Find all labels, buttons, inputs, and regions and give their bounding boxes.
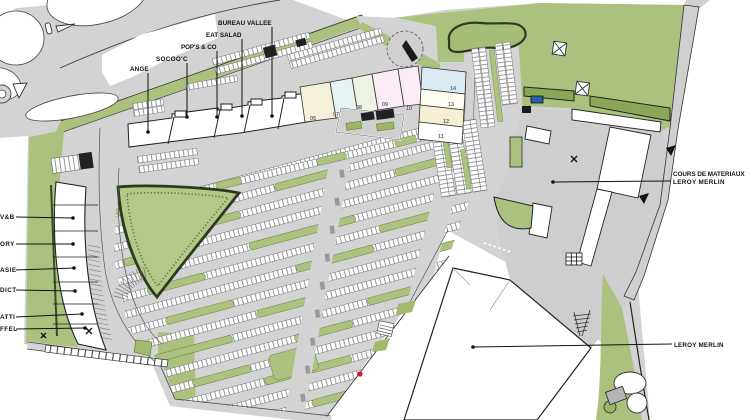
svg-text:09: 09	[382, 102, 388, 108]
svg-text:05: 05	[310, 116, 316, 122]
svg-text:ASIE: ASIE	[0, 267, 17, 274]
svg-text:ATTI: ATTI	[0, 314, 15, 321]
svg-text:ORY: ORY	[0, 241, 15, 248]
svg-text:LEROY MERLIN: LEROY MERLIN	[674, 342, 724, 349]
svg-text:DICT: DICT	[0, 287, 17, 294]
svg-text:EAT SALAD: EAT SALAD	[206, 32, 242, 39]
svg-text:SOCOO'C: SOCOO'C	[156, 56, 188, 63]
svg-text:10: 10	[406, 106, 412, 112]
svg-text:ANGE: ANGE	[130, 66, 149, 73]
svg-text:FFEL: FFEL	[0, 326, 18, 333]
svg-text:14: 14	[450, 86, 457, 92]
svg-text:V&B: V&B	[0, 214, 15, 221]
svg-text:POP'S & CO: POP'S & CO	[181, 44, 217, 51]
svg-text:13: 13	[448, 102, 454, 108]
svg-text:BUREAU VALLEE: BUREAU VALLEE	[218, 20, 272, 27]
svg-text:11: 11	[438, 134, 444, 140]
svg-text:12: 12	[443, 119, 449, 125]
svg-text:LEROY MERLIN: LEROY MERLIN	[673, 179, 725, 186]
svg-text:COURS DE MATERIAUX: COURS DE MATERIAUX	[673, 171, 745, 178]
svg-text:07: 07	[333, 112, 339, 118]
